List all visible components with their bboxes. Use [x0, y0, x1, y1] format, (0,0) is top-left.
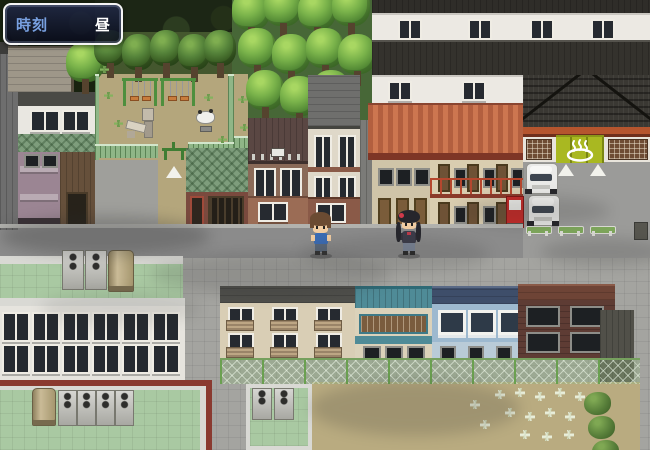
rooftop-ac-unit	[77, 390, 96, 426]
cream-building	[308, 75, 360, 228]
window	[526, 332, 560, 353]
mauve-building	[18, 152, 60, 228]
window	[570, 332, 604, 353]
shop-front	[186, 192, 248, 228]
window	[314, 135, 332, 169]
white-grass-tuft	[565, 412, 575, 421]
curb	[0, 224, 523, 228]
water-tank	[108, 250, 134, 292]
balcony	[314, 347, 342, 358]
parked-van	[523, 162, 559, 196]
lattice-window	[526, 139, 552, 160]
time-value: 昼	[95, 14, 110, 35]
school-parapet	[0, 298, 185, 306]
window	[32, 344, 60, 374]
bench	[556, 222, 584, 237]
parking-triangle-marker	[590, 164, 606, 176]
spring-rider	[194, 108, 218, 134]
parking-triangle-marker	[558, 164, 574, 176]
window	[396, 168, 412, 186]
bush	[588, 416, 615, 439]
window	[438, 310, 466, 335]
white-grass-tuft	[555, 388, 565, 397]
grass-tuft	[218, 136, 227, 143]
window	[483, 206, 496, 224]
wooden-shop	[60, 152, 95, 228]
beige-apartment	[220, 286, 355, 360]
window	[254, 168, 276, 198]
white-grass-tuft	[542, 432, 552, 441]
white-apartment-wall	[372, 75, 523, 105]
window	[526, 306, 560, 327]
green-lattice-band	[18, 134, 95, 152]
window	[258, 202, 288, 222]
rooftop-ac-unit	[252, 388, 272, 420]
white-grass-tuft	[495, 390, 505, 399]
bush	[584, 392, 611, 415]
window	[32, 312, 60, 342]
trash-bin	[634, 222, 648, 240]
girl-npc[interactable]	[396, 210, 422, 259]
white-grass-tuft	[564, 430, 574, 439]
white-grass-tuft	[515, 388, 525, 397]
lattice-townhouse	[186, 148, 248, 228]
window	[2, 344, 30, 374]
white-grass-tuft	[505, 408, 515, 417]
game-viewport[interactable]: 時刻 昼	[0, 0, 650, 450]
chain-link-fence	[220, 358, 640, 384]
window	[462, 81, 486, 101]
roof-strip	[372, 0, 650, 13]
swing-set	[160, 76, 196, 108]
lattice-window	[608, 139, 648, 160]
window	[24, 154, 40, 168]
window	[468, 19, 492, 40]
shoji-window-band	[359, 314, 428, 334]
window	[338, 135, 356, 169]
bench	[524, 222, 552, 237]
window	[92, 312, 120, 342]
white-grass-tuft	[535, 392, 545, 401]
window	[388, 81, 412, 101]
balcony	[270, 347, 298, 358]
entrance-triangle-marker	[166, 166, 182, 178]
tree	[204, 30, 236, 78]
window	[378, 168, 394, 186]
window	[2, 312, 30, 342]
balcony	[314, 320, 342, 331]
window	[42, 154, 58, 168]
park-fence	[234, 136, 248, 148]
white-grass-tuft	[520, 430, 530, 439]
balcony	[226, 347, 254, 358]
white-building	[18, 106, 95, 134]
balcony	[226, 320, 254, 331]
window	[468, 310, 496, 335]
window	[122, 312, 150, 342]
rooftop-ac-unit	[58, 390, 77, 426]
window	[152, 344, 180, 374]
tan-roof	[8, 46, 74, 92]
orange-roof	[368, 103, 523, 160]
window	[414, 168, 430, 186]
time-window: 時刻 昼	[3, 3, 123, 45]
window	[122, 344, 150, 374]
white-grass-tuft	[480, 420, 490, 429]
hot-spring-noren	[556, 135, 604, 163]
hot-spring-icon	[563, 138, 597, 162]
balcony-rail	[20, 194, 58, 202]
bench	[588, 222, 616, 237]
window	[92, 344, 120, 374]
balcony	[270, 320, 298, 331]
rooftop-ac-unit	[96, 390, 115, 426]
onsen-roof	[523, 75, 650, 129]
park-entrance-lamp	[160, 142, 188, 166]
roof-band	[18, 92, 95, 106]
school-facade	[0, 306, 185, 380]
grass-tuft	[238, 96, 247, 103]
white-grass-tuft	[525, 412, 535, 421]
window	[570, 306, 604, 327]
window	[398, 19, 422, 40]
window	[454, 206, 467, 224]
window	[280, 168, 302, 198]
grass-tuft	[114, 120, 123, 127]
blue-house	[432, 286, 518, 360]
white-apartment-wall	[372, 13, 650, 40]
ryokan-building	[355, 286, 432, 360]
rooftop-ac-unit	[62, 250, 84, 290]
park-fence	[95, 144, 158, 158]
rooftop-ac-unit	[85, 250, 107, 290]
water-tank	[32, 388, 56, 426]
slide	[126, 106, 156, 140]
swing-set	[122, 76, 158, 108]
shop-door	[66, 192, 88, 228]
maroon-building	[248, 118, 308, 228]
tree	[246, 70, 284, 122]
window	[530, 19, 554, 40]
window	[62, 344, 90, 374]
window	[30, 110, 60, 132]
white-grass-tuft	[470, 400, 480, 409]
grass-tuft	[104, 92, 113, 99]
boy-npc[interactable]	[308, 212, 334, 259]
white-grass-tuft	[545, 408, 555, 417]
grass-tuft	[100, 66, 109, 73]
window	[591, 19, 615, 40]
window	[62, 312, 90, 342]
rooftop-ac-unit	[115, 390, 134, 426]
window	[62, 110, 90, 132]
window	[152, 312, 180, 342]
grass-tuft	[204, 94, 213, 101]
rooftop-ac-unit	[274, 388, 294, 420]
roof-strip	[372, 40, 650, 75]
time-label: 時刻	[16, 14, 48, 35]
